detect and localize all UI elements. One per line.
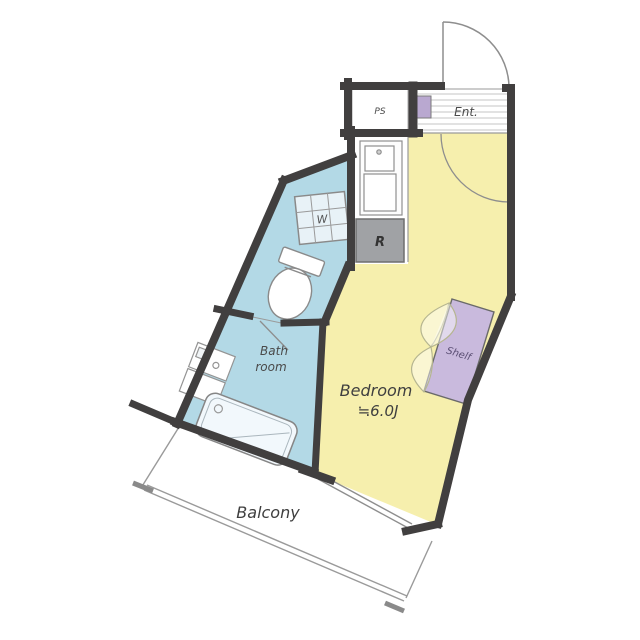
- bathroom-label-line2: room: [255, 360, 286, 374]
- entry-label: Ent.: [454, 105, 478, 119]
- bedroom-label: Bedroom: [340, 381, 413, 400]
- refrigerator-label: R: [375, 235, 385, 250]
- balcony-rail-endcap-right: [385, 603, 404, 611]
- front-door-arc: [443, 22, 509, 88]
- washer-pan: W: [295, 192, 350, 245]
- floorplan-svg: W: [0, 0, 640, 640]
- entry-meter-box: [416, 96, 431, 118]
- balcony-label: Balcony: [236, 503, 300, 522]
- ps-label: PS: [374, 107, 385, 117]
- bathroom-label-line1: Bath: [260, 344, 288, 358]
- kitchen-sink: [360, 141, 402, 215]
- floorplan-image: W: [0, 0, 640, 640]
- bedroom-size-label: ≒6.0J: [358, 402, 399, 420]
